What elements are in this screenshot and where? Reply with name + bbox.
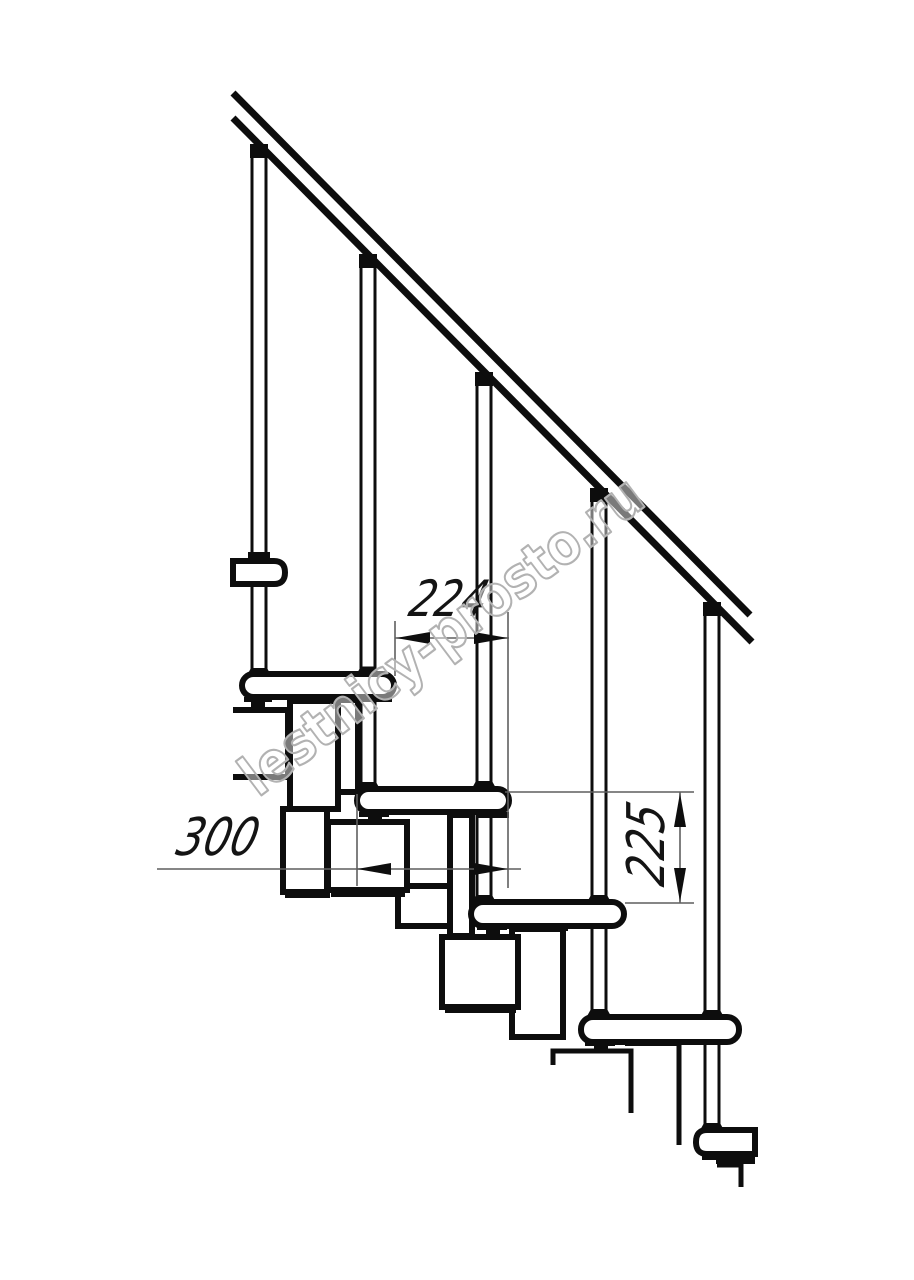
foot-b4-t4 [586,1009,612,1018]
tread-2 [357,789,509,812]
nub-under-tread-3 [477,925,507,935]
break-line-bottom [717,1165,741,1187]
collar-above-top-tread [248,552,270,562]
foot-b5-t5 [699,1123,725,1132]
tread-top-fragment [233,561,285,584]
tread-5-fragment [696,1130,755,1154]
plate-under-tread-2 [476,812,509,818]
module-3 [442,937,518,1007]
foot-b5-t4 [699,1010,725,1019]
baluster-4 [592,490,606,1012]
module-2 [328,822,407,890]
plate-under-tread-3 [528,925,568,931]
dimension-label-tread-depth: 300 [171,807,266,868]
module-3-flange [445,1004,516,1013]
tread-3 [471,902,624,926]
staircase-drawing: 224 300 225 lestnicy-prosto.ru [0,0,914,1280]
baluster-5 [705,604,719,1126]
tread-4 [581,1017,739,1042]
foot-b4-t3 [586,895,612,904]
module-2-flange [331,888,405,897]
dimension-label-rise: 225 [616,796,677,891]
drawing-canvas: 224 300 225 lestnicy-prosto.ru [0,0,914,1280]
column-flange [285,889,330,898]
break-line-module-4 [553,1051,631,1113]
support-column-lower [283,809,327,892]
plate-under-tread-5 [716,1158,755,1164]
foot-b3-t2 [471,781,497,790]
plate-under-tread-4 [625,1041,677,1046]
baluster-1 [252,148,266,674]
nub-under-tread-1 [244,697,272,707]
foot-b1-t1 [246,668,272,677]
pipe-3-flange [514,1034,561,1040]
